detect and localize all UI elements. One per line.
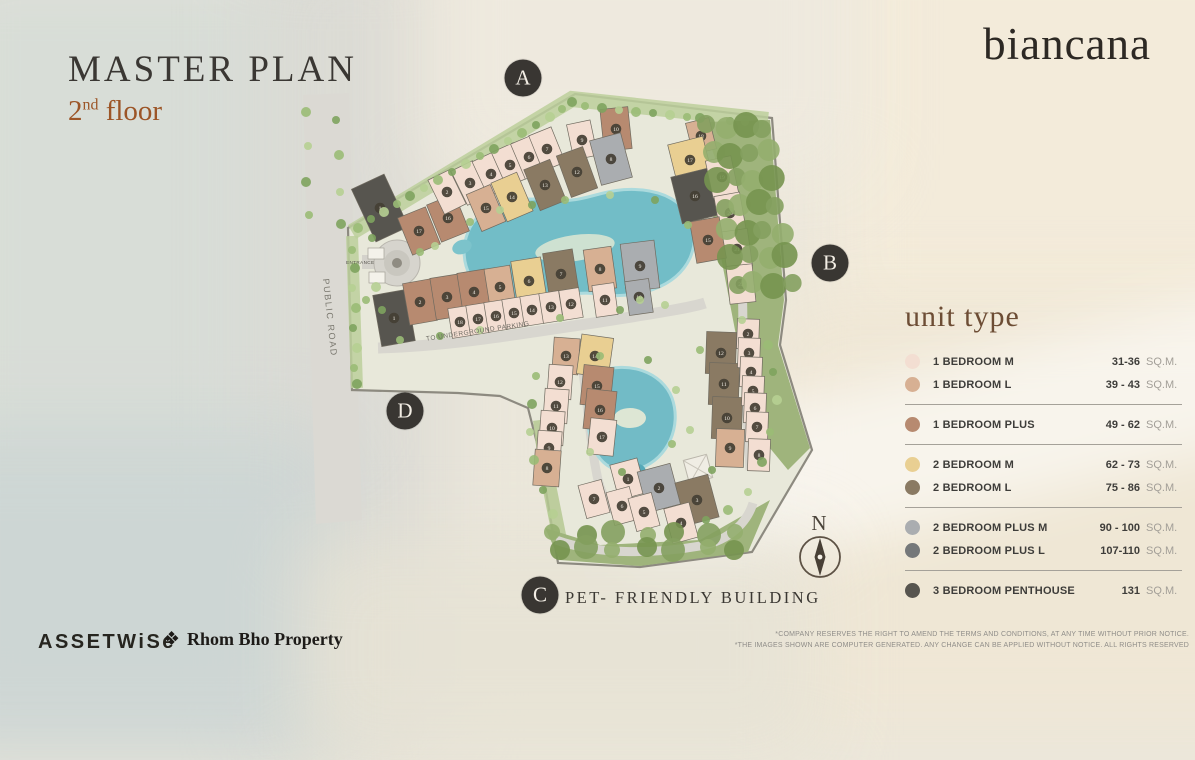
unit-size-range: 49 - 62 [1106, 419, 1140, 431]
north-compass: N [792, 508, 850, 590]
unit-color-dot [905, 520, 920, 535]
tree [763, 340, 773, 350]
tree [448, 168, 456, 176]
unit-number: 13 [542, 183, 548, 189]
unit-number: 18 [457, 320, 463, 326]
unit-number: 16 [445, 216, 451, 222]
tree [301, 177, 311, 187]
service-block [369, 272, 385, 283]
unit-size-range: 31-36 [1112, 356, 1140, 368]
tree [504, 137, 512, 145]
tree [586, 448, 594, 456]
unit-number: 7 [593, 497, 596, 503]
unit-size-unit: SQ.M. [1146, 419, 1182, 431]
unit-number: 15 [705, 238, 711, 244]
unit-number: 7 [756, 425, 759, 431]
rhombho-logo: ❖ Rhom Bho Property [163, 629, 343, 650]
unit-number: 6 [528, 155, 531, 161]
tree [574, 535, 598, 559]
unit-size-unit: SQ.M. [1146, 459, 1182, 471]
tree [352, 379, 362, 389]
tree [367, 215, 375, 223]
unit-size-range: 107-110 [1100, 545, 1140, 557]
tree [336, 188, 344, 196]
tree [420, 184, 428, 192]
tree [405, 191, 415, 201]
floor-word: floor [98, 95, 162, 127]
unit-number: 2 [419, 300, 422, 306]
unit-number: 14 [529, 308, 535, 314]
tree [724, 540, 744, 560]
unit-building-1br-l: 8 [533, 449, 561, 487]
disclaimer-line-1: *COMPANY RESERVES THE RIGHT TO AMEND THE… [735, 629, 1189, 640]
unit-type-label: 2 BEDROOM L [933, 482, 1012, 494]
tree [348, 246, 356, 254]
tree [784, 274, 802, 292]
tree [683, 113, 691, 121]
tree [351, 303, 361, 313]
building-marker-B: B [812, 245, 849, 282]
unit-number: 9 [639, 264, 642, 270]
unit-number: 13 [563, 354, 569, 360]
tree [304, 142, 312, 150]
tree [672, 386, 680, 394]
tree [708, 466, 716, 474]
unit-type-label: 1 BEDROOM M [933, 356, 1014, 368]
unit-number: 17 [416, 229, 422, 235]
legend-item-2br-l: 2 BEDROOM L75 - 86SQ.M. [905, 476, 1182, 499]
unit-number: 2 [658, 486, 661, 492]
unit-size-range: 131 [1122, 585, 1140, 597]
unit-number: 15 [483, 206, 489, 212]
unit-number: 5 [509, 163, 512, 169]
service-block [368, 248, 384, 259]
tree [738, 316, 746, 324]
tree [368, 234, 376, 242]
tree [431, 242, 439, 250]
unit-building-1br-l: 9 [715, 429, 744, 468]
tree [696, 346, 704, 354]
unit-size-unit: SQ.M. [1146, 545, 1182, 557]
unit-number: 14 [509, 195, 515, 201]
unit-building-1br-m: 11 [592, 283, 618, 318]
legend-item-1br-plus: 1 BEDROOM PLUS49 - 62SQ.M. [905, 413, 1182, 436]
unit-building-1br-m: 7 [745, 412, 768, 443]
unit-size-range: 62 - 73 [1106, 459, 1140, 471]
unit-type-label: 2 BEDROOM PLUS L [933, 545, 1045, 557]
unit-number: 10 [613, 127, 619, 133]
tree [532, 121, 540, 129]
unit-number: 8 [610, 157, 613, 163]
tree [604, 542, 620, 558]
unit-color-dot [905, 583, 920, 598]
disclaimer: *COMPANY RESERVES THE RIGHT TO AMEND THE… [735, 629, 1189, 651]
unit-type-label: 2 BEDROOM M [933, 459, 1014, 471]
tree [772, 242, 798, 268]
unit-number: 5 [643, 510, 646, 516]
unit-number: 12 [557, 380, 563, 386]
legend-title: unit type [905, 300, 1182, 334]
unit-number: 11 [721, 382, 727, 388]
unit-number: 1 [627, 477, 630, 483]
unit-color-dot [905, 417, 920, 432]
tree [668, 440, 676, 448]
unit-type-label: 1 BEDROOM L [933, 379, 1012, 391]
tree [396, 336, 404, 344]
unit-number: 10 [724, 416, 730, 422]
unit-number: 2 [747, 332, 750, 338]
tree [353, 223, 363, 233]
tree [740, 245, 758, 263]
unit-number: 13 [548, 305, 554, 311]
tree [636, 296, 644, 304]
tree [489, 144, 499, 154]
unit-number: 16 [692, 194, 698, 200]
unit-building-1br-m: 8 [747, 439, 770, 472]
unit-color-dot [905, 377, 920, 392]
unit-size-range: 39 - 43 [1106, 379, 1140, 391]
tree [772, 395, 782, 405]
unit-color-dot [905, 480, 920, 495]
unit-number: 6 [528, 279, 531, 285]
master-plan-map: 1171623456791015141312818171619202122151… [285, 58, 830, 620]
legend-divider [905, 507, 1182, 508]
unit-number: 1 [393, 316, 396, 322]
legend-item-1br-m: 1 BEDROOM M31-36SQ.M. [905, 350, 1182, 373]
tree [561, 196, 569, 204]
unit-number: 12 [574, 170, 580, 176]
tree [527, 399, 537, 409]
tree [700, 539, 716, 555]
tree [466, 218, 474, 226]
tree [757, 457, 767, 467]
fountain [392, 258, 402, 268]
tree [544, 524, 560, 540]
tree [416, 248, 424, 256]
tree [528, 201, 536, 209]
legend-item-2br-plus-m: 2 BEDROOM PLUS M90 - 100SQ.M. [905, 516, 1182, 539]
tree [581, 102, 589, 110]
disclaimer-line-2: *THE IMAGES SHOWN ARE COMPUTER GENERATED… [735, 640, 1189, 651]
tree [717, 143, 743, 169]
tree [350, 364, 358, 372]
tree [558, 105, 566, 113]
tree [545, 112, 555, 122]
tree [461, 159, 471, 169]
tree [665, 110, 675, 120]
unit-color-dot [905, 543, 920, 558]
tree [769, 368, 777, 376]
tree [532, 372, 540, 380]
unit-number: 4 [750, 370, 753, 376]
floor-ordinal: nd [83, 96, 99, 113]
unit-number: 6 [754, 406, 757, 412]
tree [661, 301, 669, 309]
rhombho-logo-text: Rhom Bho Property [187, 629, 343, 650]
unit-number: 16 [493, 314, 499, 320]
tree [371, 282, 381, 292]
unit-number: 15 [511, 311, 517, 317]
unit-number: 3 [748, 351, 751, 357]
tree [305, 211, 313, 219]
unit-number: 9 [581, 138, 584, 144]
tree [567, 97, 577, 107]
unit-size-unit: SQ.M. [1146, 522, 1182, 534]
building-marker-A: A [505, 60, 542, 97]
legend-item-2br-m: 2 BEDROOM M62 - 73SQ.M. [905, 453, 1182, 476]
tree [529, 455, 539, 465]
tree [697, 115, 715, 133]
unit-number: 9 [729, 446, 732, 452]
tree [334, 150, 344, 160]
tree [753, 221, 771, 239]
tree [496, 206, 504, 214]
unit-type-label: 2 BEDROOM PLUS M [933, 522, 1047, 534]
tree [760, 273, 786, 299]
entrance-label: ENTRANCE [346, 260, 374, 265]
unit-size-range: 90 - 100 [1100, 522, 1140, 534]
diamond-cluster-icon: ❖ [163, 630, 180, 649]
tree [644, 356, 652, 364]
unit-number: 2 [446, 190, 449, 196]
compass-n-label: N [811, 511, 826, 535]
unit-number: 4 [490, 172, 493, 178]
tree [548, 509, 558, 519]
tree [717, 244, 743, 270]
tree [740, 144, 758, 162]
tree [517, 128, 527, 138]
tree [556, 314, 564, 322]
unit-number: 12 [718, 351, 724, 357]
tree [539, 486, 547, 494]
tree [741, 271, 763, 293]
unit-size-unit: SQ.M. [1146, 379, 1182, 391]
tree [362, 296, 370, 304]
tree [716, 218, 738, 240]
tree [393, 200, 401, 208]
tree [378, 306, 386, 314]
tree [349, 324, 357, 332]
tree [661, 538, 685, 562]
unit-type-label: 3 BEDROOM PENTHOUSE [933, 585, 1075, 597]
tree [618, 468, 626, 476]
unit-number: 6 [621, 504, 624, 510]
unit-number: 3 [696, 498, 699, 504]
tree [744, 488, 752, 496]
tree [379, 207, 389, 217]
unit-type-legend: unit type 1 BEDROOM M31-36SQ.M.1 BEDROOM… [905, 300, 1182, 602]
legend-divider [905, 444, 1182, 445]
unit-color-dot [905, 457, 920, 472]
tree [526, 428, 534, 436]
tree [352, 343, 362, 353]
unit-number: 7 [546, 147, 549, 153]
tree [766, 197, 784, 215]
tree [766, 428, 774, 436]
legend-divider [905, 404, 1182, 405]
tree [758, 139, 780, 161]
tree [601, 520, 625, 544]
tree [704, 167, 730, 193]
tree [727, 524, 743, 540]
tree [301, 107, 311, 117]
unit-number: 3 [446, 295, 449, 301]
unit-number: 5 [499, 285, 502, 291]
unit-number: 3 [469, 181, 472, 187]
legend-item-penthouse: 3 BEDROOM PENTHOUSE131SQ.M. [905, 579, 1182, 602]
tree [606, 191, 614, 199]
brand-logo: biancana [983, 18, 1151, 70]
tree [637, 537, 657, 557]
legend-divider [905, 570, 1182, 571]
unit-size-unit: SQ.M. [1146, 356, 1182, 368]
unit-type-label: 1 BEDROOM PLUS [933, 419, 1035, 431]
tree [649, 109, 657, 117]
tree [616, 306, 624, 314]
unit-color-dot [905, 354, 920, 369]
tree [615, 106, 623, 114]
tree [759, 165, 785, 191]
unit-number: 17 [599, 435, 605, 441]
building-marker-C: C [522, 577, 559, 614]
tree [772, 223, 794, 245]
unit-number: 11 [602, 298, 608, 304]
unit-size-unit: SQ.M. [1146, 482, 1182, 494]
unit-number: 7 [560, 272, 563, 278]
tree [723, 505, 733, 515]
unit-number: 4 [473, 290, 476, 296]
pet-friendly-note: PET- FRIENDLY BUILDING [565, 588, 821, 608]
tree [702, 516, 710, 524]
pool-island [614, 408, 646, 428]
assetwise-logo: ASSETWiSe [38, 631, 176, 654]
floor-number: 2 [68, 95, 83, 127]
tree [753, 120, 771, 138]
legend-item-2br-plus-l: 2 BEDROOM PLUS L107-110SQ.M. [905, 539, 1182, 562]
tree [651, 196, 659, 204]
unit-number: 11 [553, 404, 559, 410]
tree [332, 116, 340, 124]
tree [348, 284, 356, 292]
tree [686, 426, 694, 434]
building-marker-D: D [387, 393, 424, 430]
unit-size-unit: SQ.M. [1146, 585, 1182, 597]
unit-number: 8 [599, 267, 602, 273]
unit-number: 17 [475, 317, 481, 323]
unit-number: 17 [687, 158, 693, 164]
tree [631, 107, 641, 117]
tree [433, 175, 443, 185]
tree [336, 219, 346, 229]
unit-number: 8 [546, 466, 549, 472]
legend-item-1br-l: 1 BEDROOM L39 - 43SQ.M. [905, 373, 1182, 396]
tree [550, 540, 570, 560]
unit-number: 12 [568, 302, 574, 308]
tree [684, 221, 692, 229]
tree [476, 152, 484, 160]
unit-number: 16 [597, 408, 603, 414]
tree [596, 352, 604, 360]
unit-size-range: 75 - 86 [1106, 482, 1140, 494]
tree [597, 103, 607, 113]
